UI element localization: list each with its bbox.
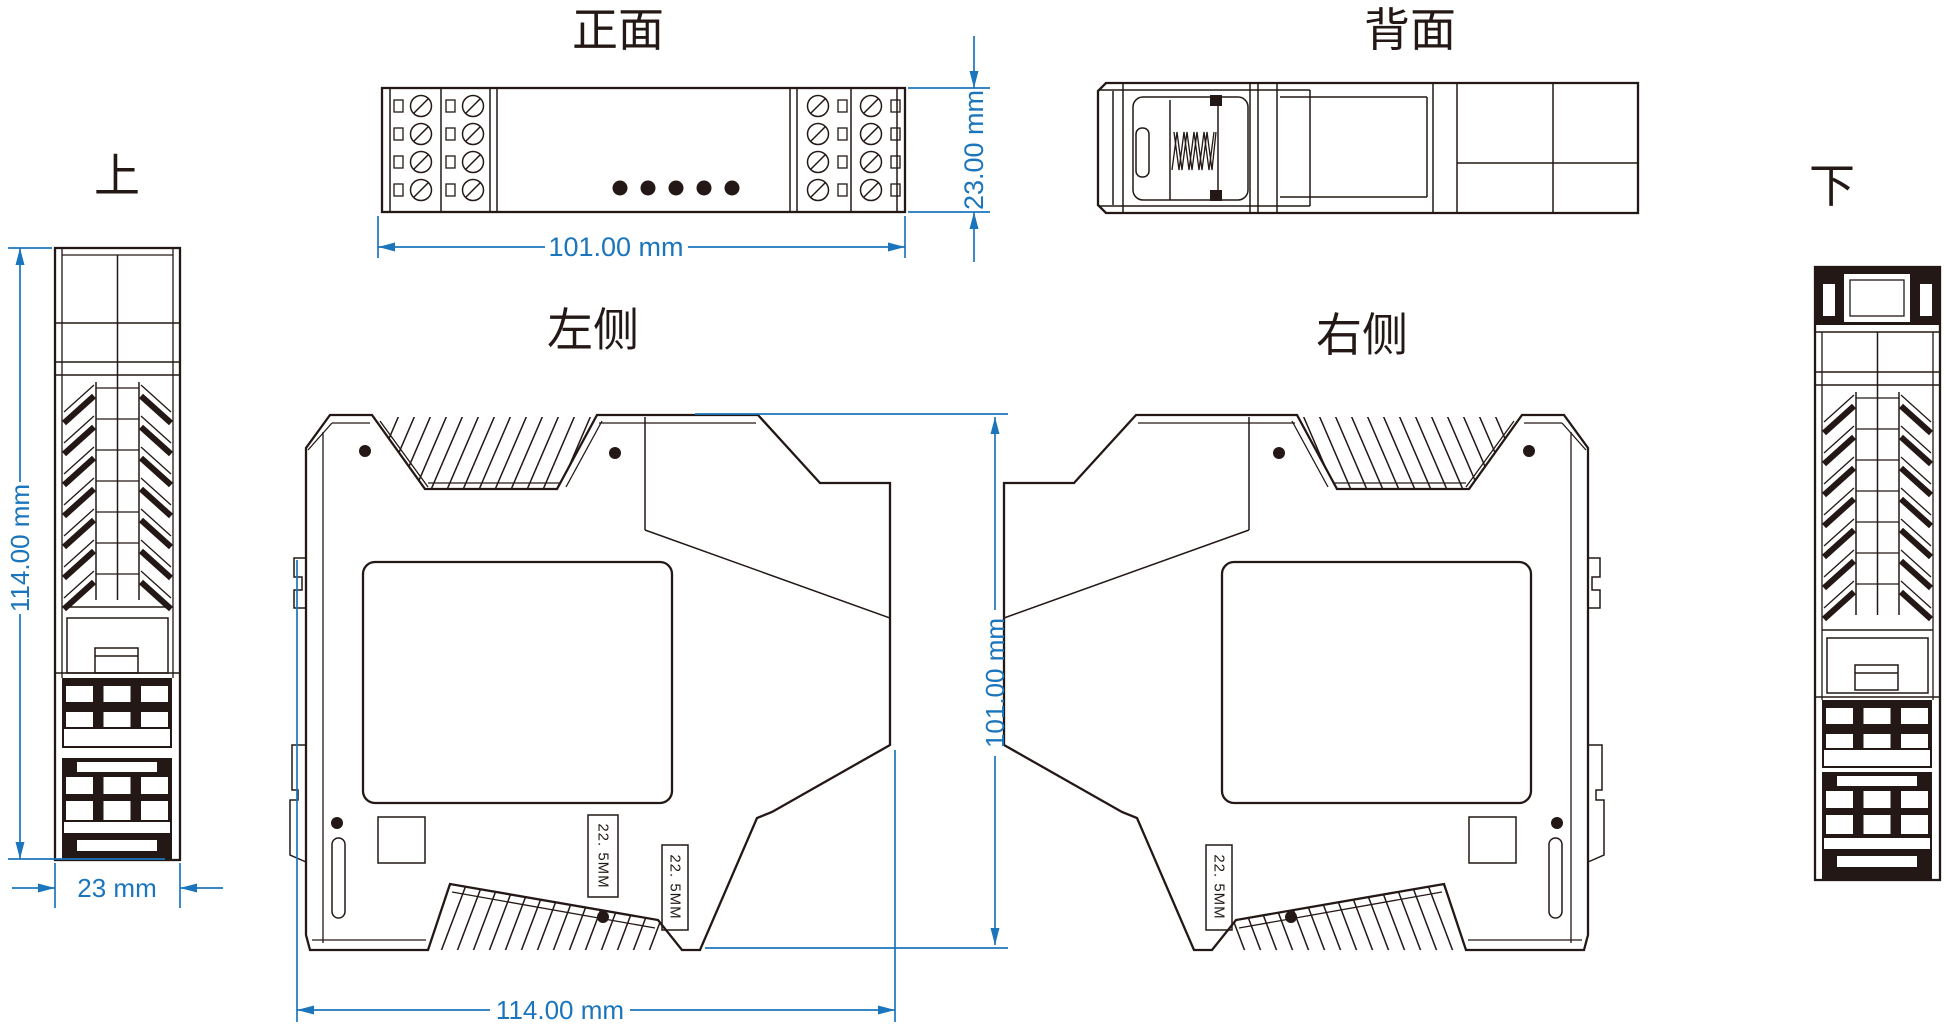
side-width-value: 114.00 mm: [496, 995, 624, 1025]
top-view-drawing: [55, 248, 180, 860]
front-height-value: 23.00 mm: [959, 90, 989, 210]
bottom-view-title: 下: [1809, 160, 1855, 212]
engineering-drawing-canvas: 正面 背面 上 下 左侧 右侧: [0, 0, 1949, 1029]
dimension-front-height: 23.00 mm: [908, 36, 990, 262]
bottom-view-drawing: [1815, 267, 1940, 880]
dimension-front-width: 101.00 mm: [378, 216, 905, 262]
top-height-value: 114.00 mm: [5, 484, 35, 612]
front-view-title: 正面: [572, 4, 664, 56]
top-view-title: 上: [94, 150, 140, 202]
dimension-top-width: 23 mm: [12, 863, 223, 908]
side-height-value: 101.00 mm: [980, 618, 1010, 748]
front-view-drawing: [382, 88, 905, 212]
din-width-label-b: 22. 5MM: [667, 854, 684, 919]
din-width-label-right: 22. 5MM: [1211, 854, 1228, 919]
right-side-view-drawing: 22. 5MM: [1004, 413, 1604, 954]
din-module-dimension-drawing: 正面 背面 上 下 左侧 右侧: [0, 0, 1949, 1029]
dimension-side-height: 101.00 mm: [695, 414, 1010, 948]
front-width-value: 101.00 mm: [548, 232, 683, 262]
back-view-title: 背面: [1364, 4, 1456, 56]
right-side-view-title: 右侧: [1316, 309, 1408, 361]
top-width-value: 23 mm: [77, 873, 156, 903]
back-view-drawing: [1098, 83, 1638, 213]
din-width-label-a: 22. 5MM: [595, 823, 612, 888]
left-side-view-title: 左侧: [547, 304, 639, 356]
led-indicator-dots: [613, 181, 740, 196]
left-side-view-drawing: 22. 5MM 22. 5MM: [290, 413, 890, 954]
